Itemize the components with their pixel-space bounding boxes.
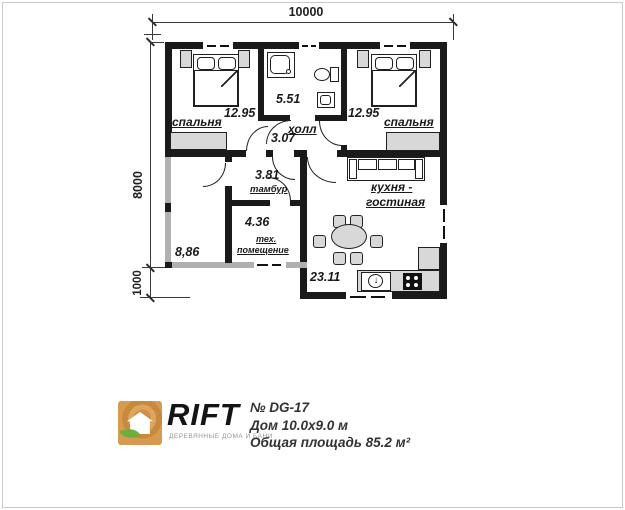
toilet-tank bbox=[330, 67, 339, 82]
company-logo bbox=[118, 401, 162, 445]
room-area-bedroom-right: 12.95 bbox=[348, 106, 379, 120]
dimension-top-label: 10000 bbox=[250, 5, 362, 19]
wall-corner-post bbox=[165, 262, 172, 268]
pillow bbox=[396, 57, 414, 70]
floor-plan-page: 10000 8000 1000 bbox=[0, 0, 625, 510]
room-area-terrace: 8,86 bbox=[175, 245, 199, 259]
room-area-tambour: 3.81 bbox=[255, 168, 279, 182]
pillow bbox=[218, 57, 236, 70]
wall-bath-left bbox=[258, 49, 264, 120]
window-kitchen-bottom bbox=[346, 292, 392, 299]
blanket-fold bbox=[221, 71, 237, 87]
extension-line bbox=[152, 14, 153, 40]
wall-bedroom-right-left bbox=[341, 49, 347, 121]
shower-drain bbox=[286, 69, 291, 74]
brand-name: RIFT bbox=[167, 397, 240, 433]
dining-chair bbox=[313, 235, 326, 248]
total-area: Общая площадь 85.2 м² bbox=[250, 434, 410, 452]
house-size: Дом 10.0x9.0 м bbox=[250, 417, 410, 435]
pillow bbox=[197, 57, 215, 70]
room-label-bedroom-left: спальня bbox=[172, 115, 222, 129]
dimension-left-label: 8000 bbox=[131, 155, 145, 215]
window-bedroom-left bbox=[203, 42, 233, 49]
washbasin-bowl bbox=[320, 95, 331, 105]
sofa-armrest bbox=[415, 159, 423, 179]
wall-tambour-left-stub bbox=[225, 157, 232, 162]
room-label-bedroom-right: спальня bbox=[384, 115, 434, 129]
extension-line bbox=[140, 297, 190, 298]
wall-door-post bbox=[266, 150, 273, 157]
extension-line bbox=[150, 42, 164, 43]
wall-kitchen-left bbox=[300, 150, 307, 299]
window-bedroom-right bbox=[380, 42, 410, 49]
wall-cold-left-upper bbox=[165, 154, 171, 203]
kitchen-counter-side bbox=[418, 247, 440, 270]
dining-chair bbox=[333, 252, 346, 265]
room-label-kitchen-2: гостиная bbox=[366, 195, 425, 209]
project-info: № DG-17 Дом 10.0x9.0 м Общая площадь 85.… bbox=[250, 399, 410, 452]
wall-junction-left bbox=[165, 203, 171, 212]
room-area-tech: 4.36 bbox=[245, 215, 269, 229]
wardrobe-right bbox=[386, 132, 440, 151]
nightstand bbox=[180, 50, 192, 68]
wall-hall-band-b bbox=[294, 150, 307, 157]
window-kitchen-right bbox=[440, 205, 447, 243]
wall-hall-band-a bbox=[165, 150, 246, 157]
stove bbox=[403, 273, 422, 290]
wall-tambour-left bbox=[225, 186, 232, 263]
room-area-bedroom-left: 12.95 bbox=[224, 106, 255, 120]
room-label-tambour: тамбур bbox=[250, 184, 288, 195]
extension-line bbox=[453, 14, 454, 40]
blanket-fold bbox=[399, 71, 415, 87]
dining-chair bbox=[350, 252, 363, 265]
sofa-armrest bbox=[349, 159, 357, 179]
dimension-left-lower-line bbox=[150, 268, 151, 298]
nightstand bbox=[238, 50, 250, 68]
sofa-cushion bbox=[398, 159, 415, 170]
window-bathroom bbox=[299, 42, 319, 49]
wall-cold-left-lower bbox=[165, 212, 171, 263]
pillow bbox=[375, 57, 393, 70]
extension-line bbox=[144, 34, 161, 35]
dining-chair bbox=[370, 235, 383, 248]
window-tech-room bbox=[254, 262, 286, 268]
sofa-cushion bbox=[378, 159, 397, 170]
wall-hall-band-c bbox=[337, 150, 447, 157]
wall-tech-top-b bbox=[290, 200, 307, 206]
room-label-kitchen-1: кухня - bbox=[371, 180, 412, 194]
room-area-bathroom: 5.51 bbox=[276, 92, 300, 106]
room-area-hall: 3.07 bbox=[271, 131, 295, 145]
wardrobe-left bbox=[170, 132, 227, 150]
dimension-top-line bbox=[152, 22, 453, 23]
wall-tech-top-a bbox=[232, 200, 270, 206]
nightstand bbox=[357, 50, 369, 68]
room-label-tech-2: помещение bbox=[237, 245, 289, 255]
room-area-kitchen: 23.11 bbox=[310, 270, 340, 284]
sofa-cushion bbox=[358, 159, 377, 170]
dining-table bbox=[331, 224, 367, 249]
project-number: № DG-17 bbox=[250, 399, 410, 417]
room-label-tech-1: тех. bbox=[256, 234, 276, 244]
sink-drain-arrow-icon: ↓ bbox=[371, 275, 381, 286]
toilet-bowl bbox=[314, 68, 330, 81]
dimension-left-line bbox=[150, 42, 151, 268]
wall-outer-right bbox=[440, 42, 447, 299]
nightstand bbox=[419, 50, 431, 68]
